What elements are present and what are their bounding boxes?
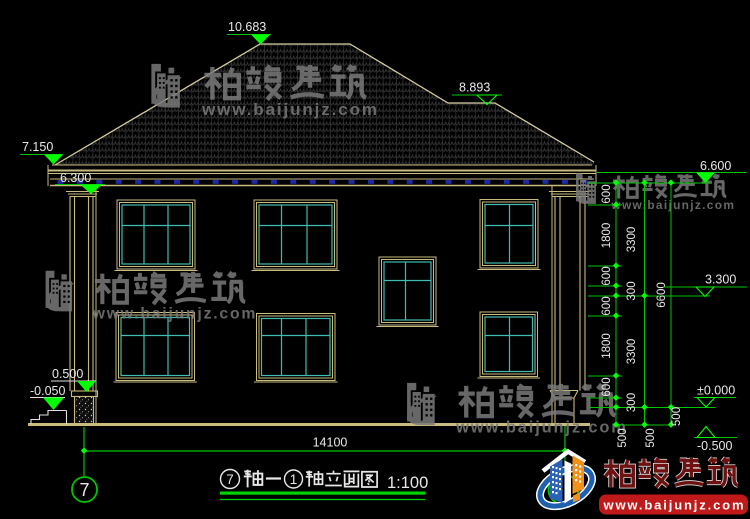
svg-text:0.500: 0.500 [52,367,83,381]
svg-text:300: 300 [626,393,638,412]
svg-text:10.683: 10.683 [228,20,266,34]
svg-text:14100: 14100 [313,436,348,450]
svg-text:600: 600 [601,377,613,396]
svg-text:www.baijunjz.com: www.baijunjz.com [455,418,629,436]
svg-text:6600: 6600 [656,282,668,308]
svg-text:1800: 1800 [601,223,613,249]
svg-text:7.150: 7.150 [22,140,53,154]
svg-text:600: 600 [601,296,613,315]
svg-text:500: 500 [671,407,683,426]
svg-text:500: 500 [645,428,657,447]
svg-text:6.600: 6.600 [700,159,731,173]
svg-text:7: 7 [79,480,89,500]
svg-text:600: 600 [601,266,613,285]
svg-text:www.baijunjz.com: www.baijunjz.com [92,305,259,322]
svg-text:500: 500 [617,428,629,447]
svg-text:3300: 3300 [626,227,638,253]
svg-text:-0.500: -0.500 [697,439,732,453]
svg-text:6.300: 6.300 [60,171,91,185]
svg-text:-0.050: -0.050 [30,384,65,398]
svg-text:www.baijunjz.com: www.baijunjz.com [610,198,736,212]
svg-text:3300: 3300 [626,339,638,365]
svg-text:1: 1 [290,472,298,487]
svg-text:7: 7 [226,472,234,487]
svg-text:±0.000: ±0.000 [697,384,735,398]
svg-text:1800: 1800 [601,333,613,359]
svg-text:1:100: 1:100 [387,474,428,492]
svg-text:8.893: 8.893 [459,81,490,95]
svg-text:www.baijunjz.com: www.baijunjz.com [201,100,380,119]
svg-text:600: 600 [601,184,613,203]
svg-text:300: 300 [626,281,638,300]
svg-text:3.300: 3.300 [705,273,736,287]
